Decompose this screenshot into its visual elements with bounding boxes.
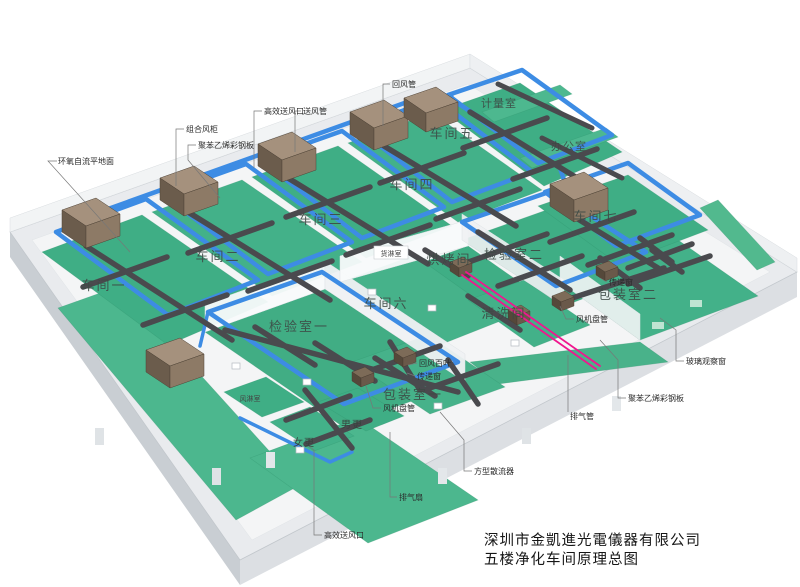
wall-window-1 <box>690 300 702 307</box>
callout-return-duct: 回风管 <box>392 79 416 89</box>
sensor-box-1 <box>368 289 376 295</box>
label-air-shower: 风淋室 <box>240 394 261 403</box>
callout-air-cabinet: 组合风柜 <box>186 124 218 134</box>
callout-hepa-top: 高效送风口 <box>264 106 304 116</box>
label-cargo-shower: 货淋室 <box>381 249 402 258</box>
label-workshop-6: 车间六 <box>363 296 408 311</box>
callout-pass-window-right: 传递窗 <box>609 277 633 287</box>
callout-hepa-bottom: 高效送风口 <box>324 530 364 540</box>
callout-panel-right: 聚苯乙烯彩钢板 <box>628 393 684 403</box>
label-baking: 烘烤间 <box>426 252 471 267</box>
callout-fan-coil-right: 风机盘管 <box>576 314 608 324</box>
title-block: 深圳市金凱進光電儀器有限公司 五楼净化车间原理总图 <box>484 531 701 568</box>
callout-fan-coil-mid: 风机盘管 <box>383 403 415 413</box>
label-workshop-5: 车间五 <box>429 126 474 141</box>
label-office: 办公室 <box>551 139 587 153</box>
label-cleaning: 清洗间 <box>481 306 526 321</box>
label-men-changing: 男更 <box>341 419 363 431</box>
label-women-changing: 女更 <box>293 436 315 449</box>
drawing-title: 五楼净化车间原理总图 <box>484 551 639 568</box>
label-packing-1: 包装室一 <box>383 387 443 402</box>
callout-supply-duct: 送风管 <box>303 106 327 116</box>
door-3 <box>266 452 275 468</box>
label-workshop-3: 车间三 <box>298 212 343 227</box>
sensor-box-4 <box>232 363 240 369</box>
sensor-box-2 <box>428 305 436 311</box>
label-workshop-1: 车间一 <box>81 278 126 293</box>
callout-panel-left: 聚苯乙烯彩钢板 <box>198 140 254 150</box>
door-4 <box>438 468 447 484</box>
callout-epoxy-floor: 环氧自流平地面 <box>58 156 114 166</box>
wall-window-2 <box>652 322 664 329</box>
label-workshop-4: 车间四 <box>389 177 434 192</box>
label-metrology: 计量室 <box>481 96 517 110</box>
callout-glass-window: 玻璃观察窗 <box>686 356 726 366</box>
callout-exhaust-pipe: 排气管 <box>570 411 594 421</box>
door-2 <box>212 468 221 485</box>
sensor-box-5 <box>303 379 311 385</box>
callout-square-diffuser: 方型散流器 <box>474 466 514 476</box>
sensor-box-3 <box>511 340 519 346</box>
company-name: 深圳市金凱進光電儀器有限公司 <box>484 531 701 549</box>
label-inspection-1: 检验室一 <box>269 319 329 334</box>
diagram-canvas: 车间一 车间二 车间三 车间四 车间五 车间六 车间七 检验室一 检验室二 包装… <box>0 0 800 587</box>
label-packing-2: 包装室二 <box>598 287 658 302</box>
cleanroom-isometric-diagram: 车间一 车间二 车间三 车间四 车间五 车间六 车间七 检验室一 检验室二 包装… <box>0 0 800 587</box>
door-5 <box>522 428 531 444</box>
callout-pass-window-mid: 传递窗 <box>417 371 441 381</box>
label-workshop-7: 车间七 <box>573 209 618 224</box>
green-floors <box>42 83 775 543</box>
square-diffuser-box <box>434 403 442 409</box>
label-inspection-2: 检验室二 <box>484 247 544 262</box>
door-1 <box>95 428 104 445</box>
callout-exhaust-fan: 排气扇 <box>399 492 423 502</box>
callout-return-louver: 回风百叶 <box>419 359 451 368</box>
label-workshop-2: 车间二 <box>195 249 240 264</box>
